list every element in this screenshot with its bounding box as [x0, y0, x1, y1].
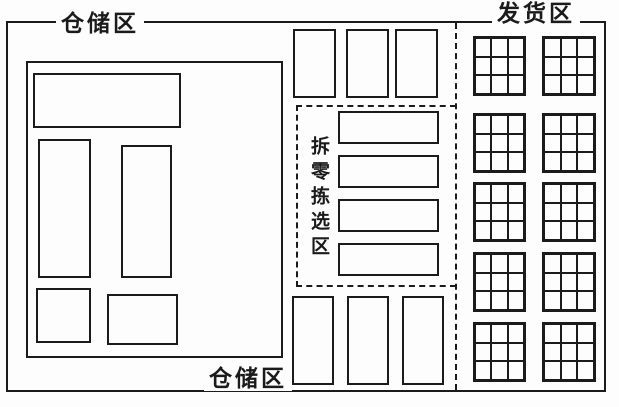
pallet-cell: [561, 152, 578, 171]
pallet-cell: [544, 361, 561, 380]
pallet-cell: [577, 273, 594, 292]
pallet-cell: [491, 254, 507, 273]
picking-shelf-2: [338, 155, 439, 188]
shipping-pallet-grid-r1-c1: [473, 36, 526, 96]
pallet-cell: [544, 134, 561, 153]
pallet-cell: [491, 115, 507, 134]
pallet-cell: [508, 273, 524, 292]
pallet-cell: [491, 134, 507, 153]
pallet-cell: [561, 361, 578, 380]
pallet-cell: [561, 273, 578, 292]
warehouse-layout-diagram: 仓储区 发货区 仓储区 拆零拣选区: [0, 0, 619, 407]
picking-shelf-1: [338, 111, 439, 144]
pallet-cell: [561, 184, 578, 203]
pallet-cell: [491, 152, 507, 171]
pallet-cell: [577, 184, 594, 203]
picking-area-label: 拆零拣选区: [302, 136, 334, 268]
pallet-cell: [475, 203, 491, 222]
pallet-cell: [561, 57, 578, 76]
pallet-cell: [508, 324, 524, 343]
pallet-cell: [475, 254, 491, 273]
storage-area-top-label: 仓储区: [56, 11, 144, 36]
shipping-pallet-grid-r4-c2: [542, 252, 596, 312]
pallet-cell: [544, 221, 561, 240]
pallet-cell: [491, 273, 507, 292]
middle-top-rack-1: [293, 29, 336, 98]
pallet-cell: [561, 324, 578, 343]
pallet-cell: [544, 203, 561, 222]
pallet-cell: [508, 57, 524, 76]
pallet-cell: [577, 203, 594, 222]
pallet-cell: [577, 291, 594, 310]
pallet-cell: [544, 254, 561, 273]
pallet-cell: [491, 75, 507, 94]
shipping-area-label: 发货区: [492, 1, 580, 26]
pallet-cell: [544, 273, 561, 292]
pallet-cell: [544, 115, 561, 134]
pallet-cell: [577, 57, 594, 76]
pallet-cell: [561, 254, 578, 273]
pallet-cell: [475, 115, 491, 134]
pallet-cell: [544, 57, 561, 76]
left-storage-shelf-small-2: [107, 294, 178, 345]
middle-bottom-rack-3: [402, 296, 444, 385]
pallet-cell: [577, 75, 594, 94]
left-storage-shelf-tall-2: [121, 145, 172, 278]
pallet-cell: [508, 152, 524, 171]
pallet-cell: [508, 75, 524, 94]
pallet-cell: [475, 184, 491, 203]
shipping-pallet-grid-r5-c1: [473, 322, 526, 382]
pallet-cell: [508, 221, 524, 240]
pallet-cell: [561, 221, 578, 240]
shipping-pallet-grid-r2-c2: [542, 113, 596, 173]
pallet-cell: [475, 361, 491, 380]
middle-bottom-rack-2: [347, 296, 389, 385]
pallet-cell: [544, 184, 561, 203]
pallet-cell: [475, 57, 491, 76]
pallet-cell: [577, 254, 594, 273]
pallet-cell: [491, 57, 507, 76]
middle-top-rack-3: [395, 29, 438, 98]
middle-bottom-rack-1: [292, 296, 334, 385]
pallet-cell: [561, 203, 578, 222]
pallet-cell: [508, 134, 524, 153]
pallet-cell: [508, 343, 524, 362]
shipping-pallet-grid-r1-c2: [542, 36, 596, 96]
pallet-cell: [561, 134, 578, 153]
pallet-cell: [508, 184, 524, 203]
shipping-pallet-grid-r4-c1: [473, 252, 526, 312]
storage-area-bottom-label: 仓储区: [204, 366, 292, 391]
middle-top-rack-2: [346, 29, 389, 98]
pallet-cell: [491, 184, 507, 203]
shipping-pallet-grid-r3-c1: [473, 182, 526, 242]
picking-shelf-3: [338, 199, 439, 232]
left-storage-shelf-wide: [33, 73, 181, 128]
pallet-cell: [561, 115, 578, 134]
pallet-cell: [577, 152, 594, 171]
pallet-cell: [491, 38, 507, 57]
pallet-cell: [491, 324, 507, 343]
pallet-cell: [508, 254, 524, 273]
pallet-cell: [491, 221, 507, 240]
pallet-cell: [475, 38, 491, 57]
shipping-area: [457, 21, 603, 392]
pallet-cell: [491, 203, 507, 222]
pallet-cell: [491, 361, 507, 380]
pallet-cell: [491, 343, 507, 362]
pallet-cell: [475, 134, 491, 153]
pallet-cell: [577, 134, 594, 153]
pallet-cell: [577, 343, 594, 362]
pallet-cell: [561, 38, 578, 57]
pallet-cell: [544, 324, 561, 343]
pallet-cell: [577, 221, 594, 240]
picking-shelf-4: [338, 243, 439, 276]
pallet-cell: [508, 291, 524, 310]
pallet-cell: [544, 343, 561, 362]
pallet-cell: [508, 203, 524, 222]
pallet-cell: [577, 38, 594, 57]
pallet-cell: [475, 152, 491, 171]
pallet-cell: [508, 115, 524, 134]
pallet-cell: [491, 291, 507, 310]
pallet-cell: [475, 273, 491, 292]
pallet-cell: [544, 75, 561, 94]
pallet-cell: [577, 324, 594, 343]
shipping-pallet-grid-r3-c2: [542, 182, 596, 242]
shipping-pallet-grid-r2-c1: [473, 113, 526, 173]
pallet-cell: [508, 361, 524, 380]
pallet-cell: [561, 343, 578, 362]
pallet-cell: [544, 152, 561, 171]
pallet-cell: [577, 115, 594, 134]
pallet-cell: [475, 291, 491, 310]
pallet-cell: [544, 38, 561, 57]
left-storage-shelf-small-1: [36, 288, 91, 343]
pallet-cell: [475, 343, 491, 362]
pallet-cell: [561, 291, 578, 310]
left-storage-shelf-tall-1: [38, 139, 91, 278]
pallet-cell: [475, 324, 491, 343]
pallet-cell: [508, 38, 524, 57]
pallet-cell: [577, 361, 594, 380]
pallet-cell: [475, 75, 491, 94]
pallet-cell: [544, 291, 561, 310]
pallet-cell: [475, 221, 491, 240]
shipping-pallet-grid-r5-c2: [542, 322, 596, 382]
pallet-cell: [561, 75, 578, 94]
